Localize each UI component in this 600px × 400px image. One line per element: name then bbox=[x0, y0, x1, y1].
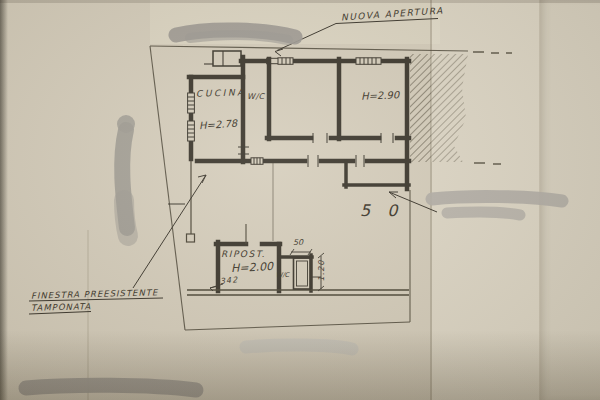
height-label-stanza-destra: H=2.90 bbox=[361, 89, 400, 101]
room-label-ripostiglio: RIPOST. bbox=[221, 249, 266, 259]
room-label-wc-piccolo: W/C bbox=[276, 271, 289, 279]
dimension-50: 50 bbox=[293, 238, 303, 247]
plan-linework bbox=[0, 0, 600, 400]
room-label-cucina: CUCINA bbox=[196, 87, 246, 99]
redaction-bottom-center bbox=[246, 345, 352, 349]
redaction-bottom-left bbox=[26, 385, 196, 390]
window-symbols bbox=[188, 58, 381, 165]
redaction-smudges bbox=[26, 30, 562, 390]
scanned-floor-plan: NUOVA APERTURA CUCINA W/C H=2.78 H=2.90 … bbox=[0, 0, 600, 400]
dimension-342: 342 bbox=[220, 275, 239, 286]
hatched-adjacent-building bbox=[410, 54, 468, 162]
dimension-120: 1.20 bbox=[317, 256, 326, 286]
annotation-finestra-line2: TAMPONATA bbox=[31, 301, 92, 313]
height-label-ripostiglio: H=2.00 bbox=[231, 260, 274, 275]
room-label-wc: W/C bbox=[247, 92, 265, 101]
note-50-large: 5 0 bbox=[360, 201, 403, 220]
redaction-right bbox=[432, 197, 562, 201]
